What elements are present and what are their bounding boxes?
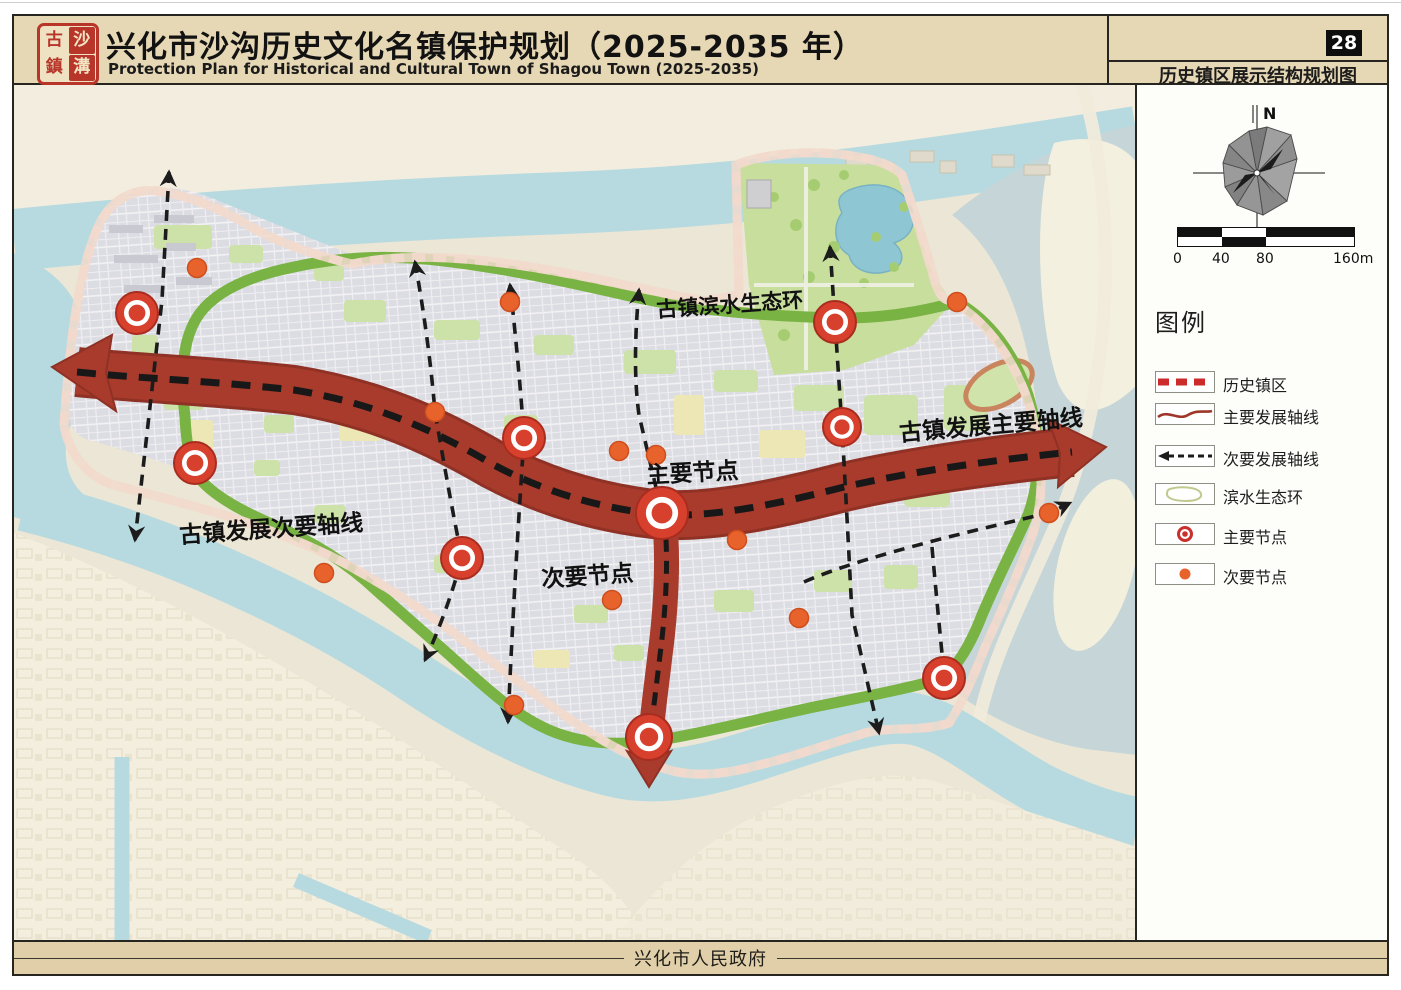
seal-char: 古	[41, 27, 68, 54]
legend-item: 历史镇区	[1155, 371, 1385, 397]
legend-item: 次要发展轴线	[1155, 445, 1385, 471]
footer-rule-left	[14, 958, 624, 959]
major-node	[174, 442, 216, 484]
legend-item: 主要节点	[1155, 523, 1385, 549]
minor-node	[426, 403, 445, 422]
header-divider-vertical	[1107, 16, 1109, 83]
publisher-name: 兴化市人民政府	[634, 945, 767, 971]
minor-node	[188, 259, 207, 278]
compass-rose: N	[1179, 97, 1339, 237]
legend-item: 滨水生态环	[1155, 483, 1385, 509]
major-node	[503, 417, 545, 459]
page-number-badge: 28	[1326, 30, 1362, 56]
legend-label: 主要节点	[1223, 524, 1287, 548]
footer: 兴化市人民政府	[12, 940, 1389, 976]
legend-symbol-secondary-axis	[1155, 445, 1215, 467]
compass-north-label: N	[1263, 104, 1276, 123]
sidebar: N 0 40 80 160m 图例 历史镇区	[1135, 85, 1389, 940]
major-node	[923, 657, 965, 699]
footer-rule-right	[777, 958, 1387, 959]
major-node	[636, 487, 688, 539]
legend-symbol-minor-node	[1155, 563, 1215, 585]
minor-node	[505, 696, 524, 715]
major-node	[823, 408, 861, 446]
minor-node	[1040, 504, 1059, 523]
legend-label: 次要发展轴线	[1223, 446, 1319, 470]
scale-tick-label: 0	[1173, 251, 1182, 267]
minor-node	[610, 442, 629, 461]
top-rule	[0, 2, 1401, 3]
legend-title: 图例	[1155, 303, 1207, 338]
seal-char: 溝	[69, 55, 96, 82]
legend-label: 历史镇区	[1223, 372, 1287, 396]
header: 古 沙 鎮 溝 兴化市沙沟历史文化名镇保护规划（2025-2035 年） Pro…	[12, 14, 1389, 85]
legend-symbol-main-axis	[1155, 403, 1215, 425]
major-node	[441, 537, 483, 579]
scale-tick-label: 80	[1256, 251, 1274, 267]
map-canvas: 古镇滨水生态环 古镇发展主要轴线 主要节点 次要节点 古镇发展次要轴线	[14, 85, 1135, 940]
legend-item: 次要节点	[1155, 563, 1385, 589]
page-subtitle-en: Protection Plan for Historical and Cultu…	[108, 60, 759, 78]
scale-tick-label: 40	[1212, 251, 1230, 267]
legend-symbol-waterfront-ring	[1155, 483, 1215, 505]
legend-symbol-major-node	[1155, 523, 1215, 545]
legend-item: 主要发展轴线	[1155, 403, 1385, 429]
scale-bar	[1177, 227, 1355, 247]
map-area: 古镇滨水生态环 古镇发展主要轴线 主要节点 次要节点 古镇发展次要轴线	[12, 85, 1135, 940]
legend-label: 滨水生态环	[1223, 484, 1303, 508]
label-major-node: 主要节点	[646, 458, 739, 489]
park-building	[747, 180, 771, 208]
major-node	[116, 292, 158, 334]
major-node	[814, 301, 856, 343]
legend-label: 次要节点	[1223, 564, 1287, 588]
minor-node	[315, 564, 334, 583]
minor-node	[728, 531, 747, 550]
legend-label: 主要发展轴线	[1223, 404, 1319, 428]
scale-tick-label: 160m	[1333, 251, 1373, 267]
scale-labels: 0 40 80 160m	[1167, 251, 1367, 269]
major-node	[626, 714, 672, 760]
legend-symbol-historic-area	[1155, 371, 1215, 393]
minor-node	[948, 293, 967, 312]
minor-node	[790, 609, 809, 628]
plan-sheet-page: 古 沙 鎮 溝 兴化市沙沟历史文化名镇保护规划（2025-2035 年） Pro…	[0, 0, 1401, 990]
town-seal-logo: 古 沙 鎮 溝	[37, 23, 99, 85]
seal-char: 沙	[69, 27, 96, 54]
minor-node	[603, 591, 622, 610]
minor-node	[501, 293, 520, 312]
seal-char: 鎮	[41, 55, 68, 82]
